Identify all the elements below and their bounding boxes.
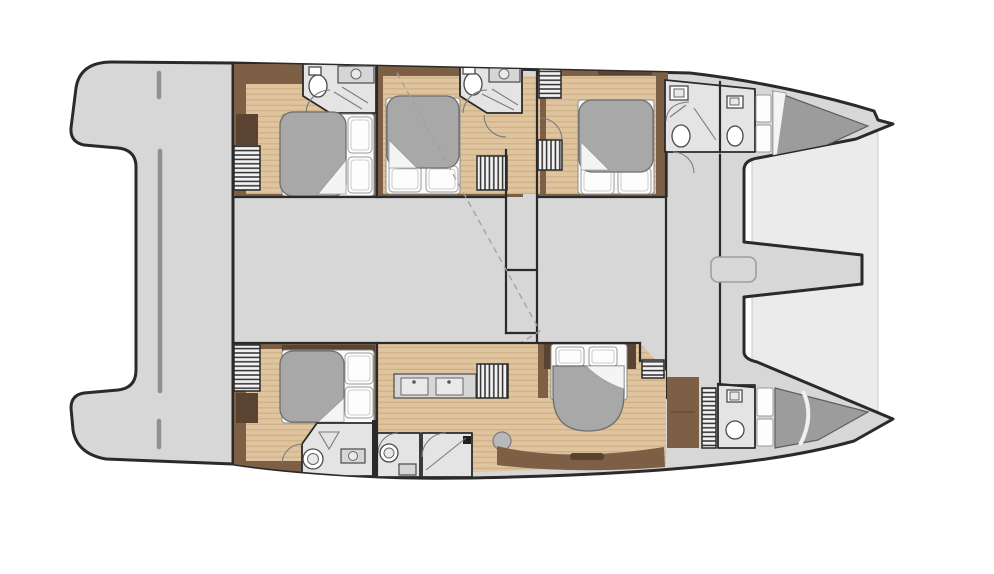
cabin4-shelf [236, 393, 258, 423]
cabin1-wardrobe-stairs [234, 146, 260, 190]
toilet-bowl [384, 448, 394, 458]
aft-platform [71, 62, 233, 464]
cistern [309, 67, 321, 75]
cabin1-shelf [236, 114, 258, 146]
owner-vanity [394, 374, 476, 398]
cabin3-wardrobe [539, 68, 561, 98]
sink-icon [351, 69, 361, 79]
cabin2-bed [386, 96, 460, 194]
sink-icon [349, 452, 358, 461]
floor-plan [0, 0, 994, 574]
owner-shower [422, 433, 472, 477]
sideboard-handle [570, 453, 604, 460]
toilet-icon [672, 125, 690, 147]
cabin1-bed [280, 112, 374, 196]
owner-wc [377, 433, 420, 477]
cabin2-stairs [477, 156, 507, 190]
sink-bowl [730, 98, 739, 105]
owner-steps [642, 360, 664, 378]
aft-platform-outline [71, 62, 233, 464]
foredeck-hatch [711, 257, 756, 282]
faucet-icon [447, 380, 451, 384]
floor-plan-canvas [0, 0, 994, 574]
owner-wardrobe [477, 364, 508, 398]
faucet-icon [412, 380, 416, 384]
toilet-icon [726, 421, 744, 439]
cabin3-bed [578, 100, 654, 194]
sink-bowl [730, 392, 739, 400]
bathroom-forward-top [665, 80, 755, 152]
sink-icon [399, 464, 416, 475]
toilet-icon [727, 126, 743, 146]
bow-cushion [757, 388, 773, 416]
toilet-bowl [308, 454, 319, 465]
cabin4-bed [280, 345, 375, 423]
cabin4-wardrobe-stairs [234, 345, 260, 391]
bow-stairs [702, 388, 716, 448]
sink-icon [499, 69, 509, 79]
cabin3-stairs [538, 140, 562, 170]
sink-bowl [674, 89, 684, 97]
bow-cushion [757, 419, 773, 446]
